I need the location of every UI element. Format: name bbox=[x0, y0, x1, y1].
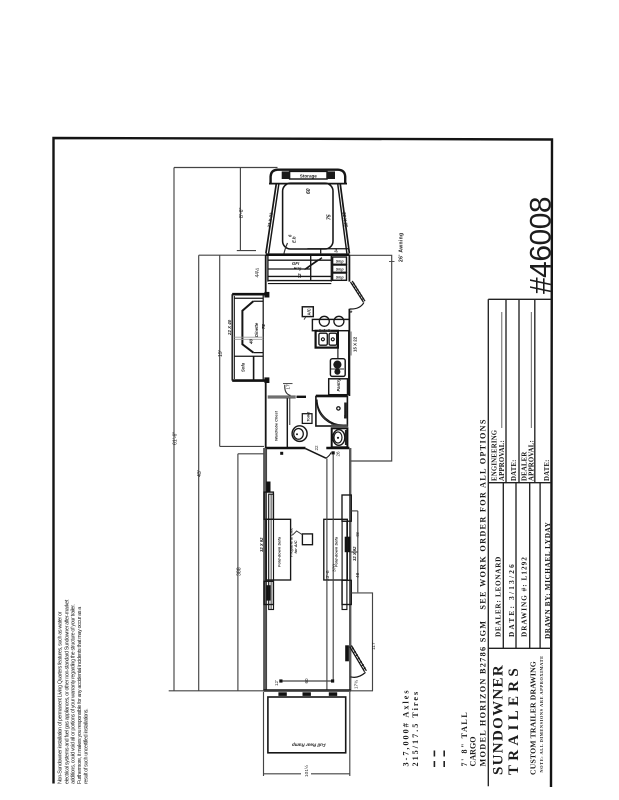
svg-text:72: 72 bbox=[297, 273, 302, 278]
svg-text:61'-6": 61'-6" bbox=[173, 432, 179, 445]
svg-text:Storage: Storage bbox=[300, 173, 318, 178]
svg-text:Step: Step bbox=[336, 259, 345, 263]
svg-text:48: 48 bbox=[355, 532, 361, 538]
svg-text:15 X 22: 15 X 22 bbox=[352, 336, 357, 352]
svg-text:43': 43' bbox=[197, 470, 203, 477]
svg-text:8'-6": 8'-6" bbox=[239, 208, 245, 218]
svg-text:*: * bbox=[350, 311, 353, 317]
svg-text:TRAILERS: TRAILERS bbox=[506, 664, 522, 775]
svg-text:3-7,000# Axles: 3-7,000# Axles bbox=[402, 688, 411, 766]
svg-text:Non-Sundowner installation of: Non-Sundowner installation of permanent … bbox=[58, 611, 64, 784]
svg-text:48: 48 bbox=[355, 572, 361, 578]
svg-text:CARGO: CARGO bbox=[469, 737, 478, 767]
svg-text:44½: 44½ bbox=[254, 267, 261, 278]
svg-text:117: 117 bbox=[371, 642, 377, 650]
svg-text:Furthermore, it makes you resp: Furthermore, it makes you responsible fo… bbox=[77, 607, 83, 784]
svg-text:APPROVAL:: APPROVAL: bbox=[529, 440, 536, 481]
svg-text:370: 370 bbox=[331, 564, 337, 572]
svg-text:A/C: A/C bbox=[307, 308, 312, 315]
svg-text:32 X 92: 32 X 92 bbox=[259, 537, 264, 552]
svg-text:MODEL HORIZON B2786 SGM SEE: MODEL HORIZON B2786 SGM SEE WORK ORDER F… bbox=[479, 418, 488, 766]
svg-text:E.b: E.b bbox=[292, 236, 297, 243]
svg-text:Step: Step bbox=[336, 275, 345, 279]
svg-text:32 X 92: 32 X 92 bbox=[352, 546, 357, 561]
svg-text:Sofa: Sofa bbox=[240, 362, 245, 372]
svg-text:Shw: Shw bbox=[343, 411, 347, 419]
svg-text:DATE:: DATE: bbox=[544, 459, 551, 481]
svg-text:32 X 92: 32 X 92 bbox=[342, 211, 349, 227]
svg-text:DRAWN BY: MICHAEL LYDAY: DRAWN BY: MICHAEL LYDAY bbox=[544, 521, 552, 639]
svg-text:Dinette: Dinette bbox=[254, 322, 259, 337]
svg-text:22: 22 bbox=[314, 445, 319, 451]
svg-text:NOTE: ALL DIMENSIONS ARE APPRO: NOTE: ALL DIMENSIONS ARE APPROXIMATE bbox=[539, 655, 544, 772]
svg-text:75: 75 bbox=[327, 214, 333, 220]
svg-text:17¾: 17¾ bbox=[353, 680, 358, 689]
svg-text:electrical systems and fuel ga: electrical systems and fuel gas applianc… bbox=[64, 599, 70, 784]
svg-text:388: 388 bbox=[236, 567, 242, 576]
svg-text:DATE: 3/13/26: DATE: 3/13/26 bbox=[508, 562, 516, 637]
svg-text:72: 72 bbox=[261, 323, 266, 329]
svg-text:Toilet: Toilet bbox=[306, 411, 310, 422]
svg-text:CUSTOM TRAILER DRAWING: CUSTOM TRAILER DRAWING bbox=[528, 661, 537, 775]
svg-text:DRAWING #: L1292: DRAWING #: L1292 bbox=[521, 556, 529, 637]
svg-text:#46008: #46008 bbox=[525, 197, 558, 294]
svg-text:ENGINEERING: ENGINEERING bbox=[492, 429, 499, 481]
svg-text:12': 12' bbox=[274, 680, 279, 686]
svg-text:17': 17' bbox=[286, 383, 291, 389]
svg-text:result of such uncertified ins: result of such uncertified installations… bbox=[84, 709, 90, 784]
svg-text:34: 34 bbox=[334, 247, 339, 252]
svg-text:APPROVAL:: APPROVAL: bbox=[499, 440, 506, 481]
svg-text:26' Awning: 26' Awning bbox=[398, 233, 404, 262]
svg-text:7' 8" TALL: 7' 8" TALL bbox=[460, 711, 469, 767]
svg-text:60: 60 bbox=[304, 678, 309, 684]
svg-text:SUNDOWNER: SUNDOWNER bbox=[491, 664, 507, 775]
svg-text:60: 60 bbox=[306, 188, 312, 194]
svg-text:19': 19' bbox=[218, 350, 224, 357]
svg-text:Step: Step bbox=[336, 267, 345, 271]
svg-text:Pantry: Pantry bbox=[336, 378, 341, 392]
svg-text:23'-8: 23'-8 bbox=[325, 570, 331, 581]
svg-text:215/17.5 Tires: 215/17.5 Tires bbox=[411, 690, 420, 767]
svg-text:DATE:: DATE: bbox=[511, 459, 518, 481]
svg-text:DEALER: DEALER bbox=[521, 451, 528, 481]
svg-text:Fold-down Sofa: Fold-down Sofa bbox=[333, 536, 338, 567]
svg-text:DEALER: LEONARD: DEALER: LEONARD bbox=[495, 556, 503, 637]
svg-text:Full Rear Ramp: Full Rear Ramp bbox=[292, 743, 326, 748]
svg-text:26: 26 bbox=[335, 451, 340, 457]
svg-text:for A/C: for A/C bbox=[293, 540, 298, 553]
svg-text:101½: 101½ bbox=[303, 765, 310, 777]
svg-text:Wardrobe Chest: Wardrobe Chest bbox=[274, 410, 279, 441]
svg-text:Frig: Frig bbox=[294, 266, 302, 271]
svg-text:Fold-down Sofa: Fold-down Sofa bbox=[276, 536, 281, 567]
svg-text:40: 40 bbox=[249, 338, 254, 345]
svg-text:22 X 40: 22 X 40 bbox=[227, 319, 232, 336]
svg-text:additions, could void all or p: additions, could void all or portions of… bbox=[71, 605, 77, 785]
